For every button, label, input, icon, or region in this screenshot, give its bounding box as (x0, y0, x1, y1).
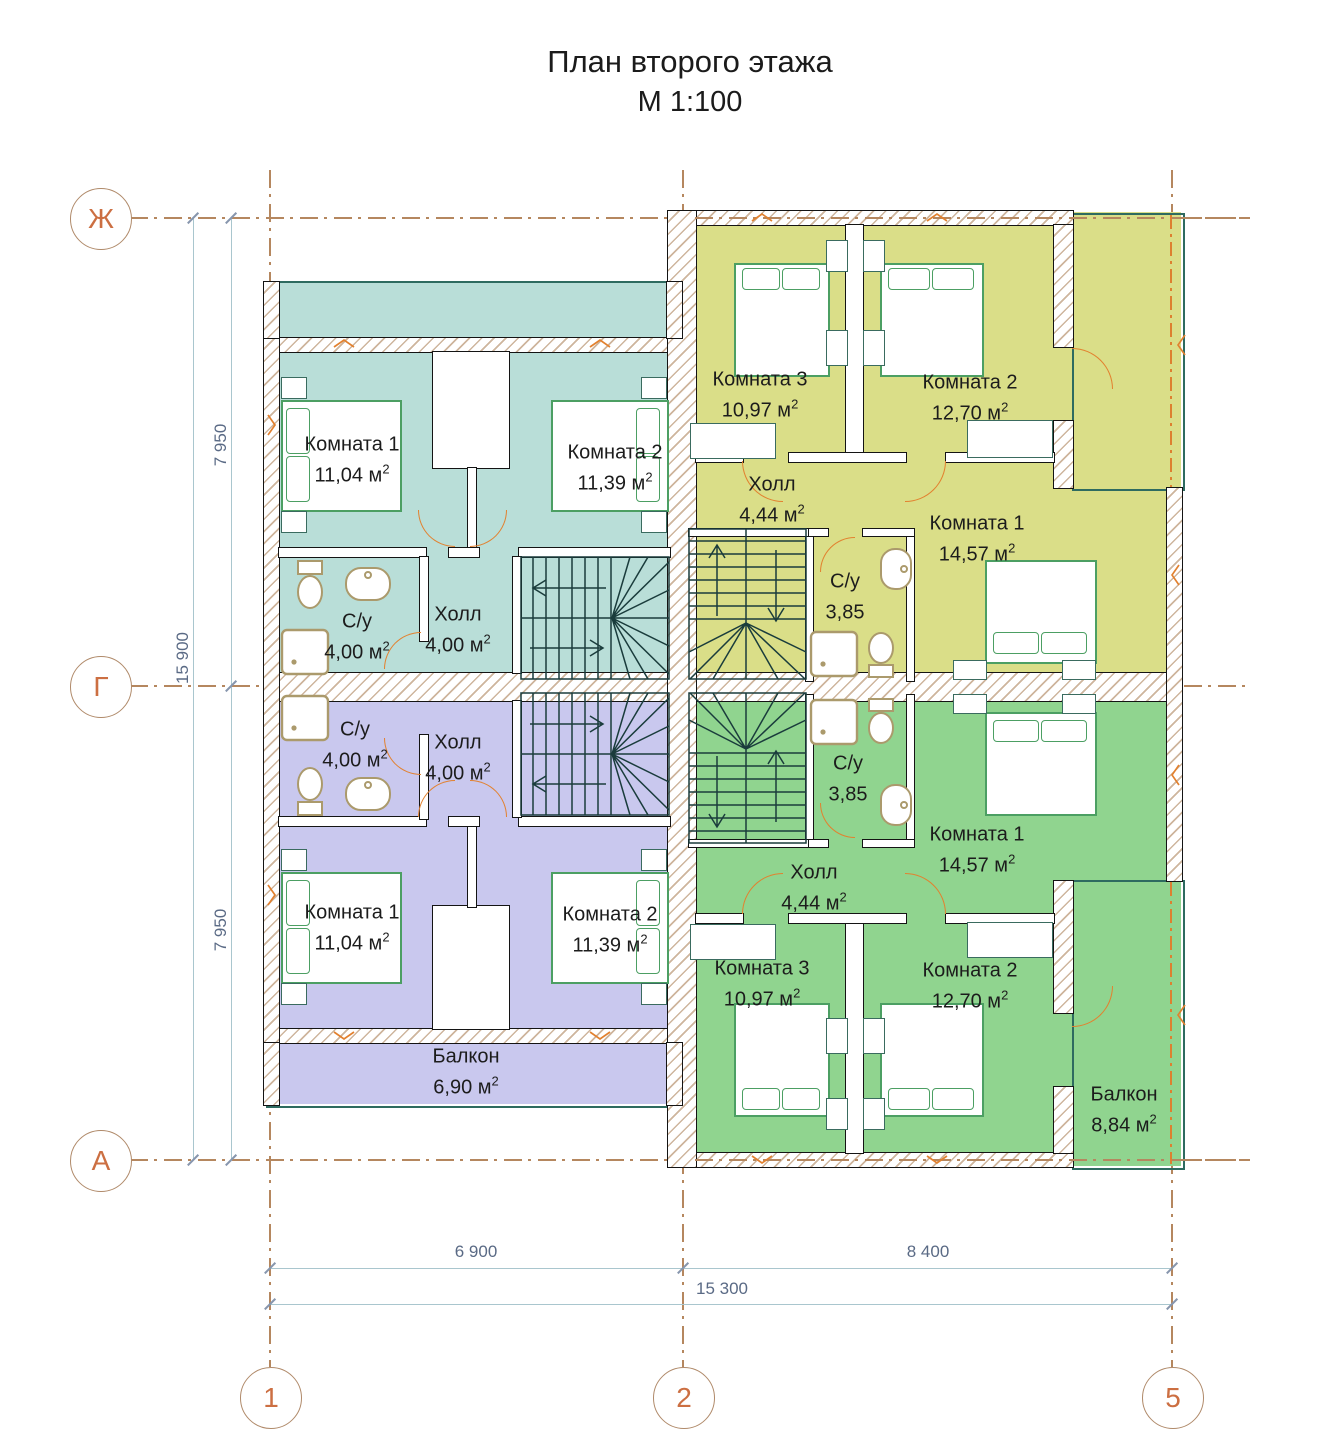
pillow (742, 1088, 780, 1110)
room-label-br-k3: Комната 3 10,97 м2 (715, 954, 810, 1015)
room-area-sup: 2 (382, 462, 389, 477)
axis-circle-1: 1 (240, 1367, 302, 1429)
window-mark-icon (750, 1154, 774, 1164)
axis-label-g: Г (93, 671, 108, 703)
closet (826, 1018, 848, 1054)
room-label-br-hall: Холл 4,44 м2 (781, 858, 846, 919)
room-area: 4,44 м2 (739, 500, 804, 531)
wall-segment (862, 839, 915, 848)
closet (826, 1098, 848, 1130)
room-label-br-k2: Комната 2 12,70 м2 (923, 956, 1018, 1017)
dimension-label-bottom-total: 15 300 (696, 1279, 748, 1299)
wall-segment (263, 281, 280, 339)
nightstand (281, 377, 307, 399)
pillow (1041, 720, 1087, 742)
toilet-icon (866, 698, 896, 746)
nightstand (1062, 660, 1096, 680)
wall-segment (467, 822, 477, 908)
closet (863, 240, 885, 272)
wall-segment (666, 281, 683, 339)
wall-segment (788, 452, 907, 463)
window-mark-icon (267, 413, 277, 437)
room-area-value: 14,57 м (939, 543, 1008, 565)
room-name: Комната 2 (568, 438, 663, 468)
pillow (932, 1088, 974, 1110)
room-name: С/у (322, 715, 387, 745)
wall-segment (1166, 487, 1183, 882)
pillow (1041, 632, 1087, 654)
balcony-outline-top-left (266, 281, 682, 341)
room-area: 14,57 м2 (930, 850, 1025, 881)
room-area-value: 10,97 м (722, 399, 791, 421)
room-area-value: 3,85 (826, 601, 865, 623)
room-area-value: 6,90 м (433, 1076, 491, 1098)
room-area: 8,84 м2 (1090, 1110, 1157, 1141)
room-area-sup: 2 (1150, 1112, 1157, 1127)
room-area: 10,97 м2 (713, 395, 808, 426)
grid-line-zh-overlay (695, 217, 1250, 219)
room-area: 11,04 м2 (305, 460, 400, 491)
closet (826, 330, 848, 366)
room-name: Комната 1 (930, 509, 1025, 539)
room-name: Комната 2 (923, 956, 1018, 986)
room-label-tl-k2: Комната 2 11,39 м2 (568, 438, 663, 499)
room-name: Холл (739, 470, 804, 500)
axis-circle-2: 2 (653, 1367, 715, 1429)
nightstand (281, 511, 307, 533)
pillow (993, 720, 1039, 742)
pillow (993, 632, 1039, 654)
room-area: 4,00 м2 (324, 637, 389, 668)
window-mark-icon (925, 212, 949, 222)
room-area-sup: 2 (381, 747, 388, 762)
window-mark-icon (588, 338, 612, 348)
room-name: Комната 2 (563, 900, 658, 930)
dimension-label-left-top: 7 950 (211, 424, 231, 467)
room-area-value: 4,00 м (322, 749, 380, 771)
dimension-label-left-bottom: 7 950 (211, 909, 231, 952)
axis-label-zh: Ж (88, 203, 114, 235)
grid-line-5-balcony-top (1170, 215, 1172, 487)
wall-segment (862, 528, 915, 537)
room-area-sup: 2 (798, 502, 805, 517)
room-area-sup: 2 (382, 930, 389, 945)
dimension-line-left-total (193, 218, 194, 1160)
toilet-icon (295, 764, 325, 816)
room-label-br-balcony: Балкон 8,84 м2 (1090, 1080, 1157, 1141)
wall-segment (432, 351, 510, 469)
room-area-value: 11,04 м (314, 932, 382, 954)
room-area-sup: 2 (1001, 400, 1008, 415)
window-mark-icon (1171, 763, 1181, 787)
pillow (742, 268, 780, 290)
room-area: 11,39 м2 (568, 468, 663, 499)
pillow (932, 268, 974, 290)
closet (863, 1018, 885, 1054)
room-area: 12,70 м2 (923, 398, 1018, 429)
room-label-tl-hall: Холл 4,00 м2 (425, 600, 490, 661)
closet (863, 1098, 885, 1130)
room-name: С/у (826, 567, 865, 597)
room-area: 4,00 м2 (425, 758, 490, 789)
room-label-bl-k1: Комната 1 11,04 м2 (305, 898, 400, 959)
wardrobe (690, 423, 776, 459)
room-area: 12,70 м2 (923, 986, 1018, 1017)
nightstand (641, 849, 667, 871)
shower-icon (809, 630, 859, 678)
nightstand (1062, 694, 1096, 714)
wall-segment (518, 816, 671, 827)
room-label-bl-hall: Холл 4,00 м2 (425, 728, 490, 789)
sink-icon (879, 783, 913, 827)
room-name: Комната 1 (930, 820, 1025, 850)
wall-segment (1053, 420, 1074, 489)
wall-segment (1053, 224, 1074, 348)
dimension-label-bottom-left: 6 900 (455, 1242, 498, 1262)
room-label-bl-balcony: Балкон 6,90 м2 (432, 1042, 499, 1103)
grid-line-5-balcony-bottom (1170, 882, 1172, 1164)
sink-icon (879, 547, 913, 591)
wall-segment (448, 816, 480, 827)
window-mark-icon (1171, 563, 1181, 587)
room-area: 3,85 (826, 597, 865, 628)
nightstand (953, 660, 987, 680)
room-area-sup: 2 (793, 986, 800, 1001)
wall-segment (448, 547, 480, 558)
room-name: Балкон (432, 1042, 499, 1072)
closet (863, 330, 885, 366)
room-name: Холл (425, 600, 490, 630)
axis-label-a: А (92, 1145, 111, 1177)
scale-label: М 1:100 (638, 86, 743, 119)
room-label-bl-su: С/у 4,00 м2 (322, 715, 387, 776)
room-name: Комната 1 (305, 898, 400, 928)
axis-label-1: 1 (263, 1382, 279, 1414)
room-area-value: 11,39 м (572, 934, 640, 956)
sink-icon (344, 566, 392, 602)
nightstand (281, 849, 307, 871)
room-area-sup: 2 (640, 932, 647, 947)
wall-segment (278, 816, 427, 827)
nightstand (641, 511, 667, 533)
shower-icon (809, 698, 859, 746)
room-label-br-k1: Комната 1 14,57 м2 (930, 820, 1025, 881)
grid-line-a-overlay (695, 1159, 1250, 1161)
room-area-sup: 2 (484, 760, 491, 775)
room-label-bl-k2: Комната 2 11,39 м2 (563, 900, 658, 961)
room-area-value: 10,97 м (724, 988, 793, 1010)
room-label-tr-su: С/у 3,85 (826, 567, 865, 628)
wardrobe (967, 922, 1053, 958)
room-area-value: 11,04 м (314, 464, 382, 486)
room-label-br-su: С/у 3,85 (829, 749, 868, 810)
wall-segment (695, 913, 744, 924)
room-name: С/у (324, 607, 389, 637)
window-mark-icon (1177, 1003, 1187, 1027)
room-area-sup: 2 (492, 1074, 499, 1089)
window-mark-icon (925, 1154, 949, 1164)
room-area-value: 11,39 м (577, 472, 645, 494)
room-name: С/у (829, 749, 868, 779)
room-label-tr-k3: Комната 3 10,97 м2 (713, 365, 808, 426)
room-area-sup: 2 (1008, 541, 1015, 556)
room-name: Комната 3 (715, 954, 810, 984)
pillow (888, 1088, 930, 1110)
room-label-tr-k2: Комната 2 12,70 м2 (923, 368, 1018, 429)
wall-segment (1053, 880, 1074, 1014)
wall-segment (432, 905, 510, 1030)
room-area-value: 12,70 м (932, 402, 1001, 424)
room-area: 11,04 м2 (305, 928, 400, 959)
room-area-value: 4,00 м (425, 634, 483, 656)
room-label-tl-su: С/у 4,00 м2 (324, 607, 389, 668)
wall-segment (263, 1042, 280, 1106)
toilet-icon (866, 630, 896, 678)
page-title: План второго этажа (547, 44, 832, 80)
shower-icon (280, 628, 330, 676)
room-label-tr-k1: Комната 1 14,57 м2 (930, 509, 1025, 570)
room-name: Комната 1 (305, 430, 400, 460)
window-mark-icon (267, 883, 277, 907)
room-area-value: 4,44 м (739, 504, 797, 526)
pillow (782, 268, 820, 290)
stairs (520, 692, 670, 816)
nightstand (641, 377, 667, 399)
room-area-value: 3,85 (829, 783, 868, 805)
dimension-line-bottom-total (270, 1304, 1172, 1305)
room-area: 4,00 м2 (425, 630, 490, 661)
dimension-line-bottom-halves (270, 1268, 1172, 1269)
room-label-tl-k1: Комната 1 11,04 м2 (305, 430, 400, 491)
toilet-icon (295, 560, 325, 612)
nightstand (641, 983, 667, 1005)
wall-segment (667, 210, 697, 1168)
floor-plan: План второго этажа М 1:100 Ж Г А 1 2 5 1… (0, 0, 1325, 1449)
room-area-sup: 2 (1001, 988, 1008, 1003)
stairs (688, 528, 807, 680)
room-label-tr-hall: Холл 4,44 м2 (739, 470, 804, 531)
room-area-value: 14,57 м (939, 854, 1008, 876)
wall-segment (666, 1042, 683, 1106)
pillow (782, 1088, 820, 1110)
room-area-value: 8,84 м (1091, 1114, 1149, 1136)
room-area-value: 4,44 м (781, 892, 839, 914)
window-mark-icon (750, 212, 774, 222)
room-name: Холл (425, 728, 490, 758)
room-area-value: 4,00 м (425, 762, 483, 784)
room-area-sup: 2 (645, 470, 652, 485)
room-area: 4,44 м2 (781, 888, 846, 919)
room-area-sup: 2 (383, 639, 390, 654)
axis-label-2: 2 (676, 1382, 692, 1414)
axis-circle-g: Г (70, 656, 132, 718)
window-mark-icon (332, 338, 356, 348)
room-name: Балкон (1090, 1080, 1157, 1110)
room-area: 3,85 (829, 779, 868, 810)
pillow (888, 268, 930, 290)
axis-circle-zh: Ж (70, 188, 132, 250)
wall-segment (1053, 1086, 1074, 1154)
nightstand (953, 694, 987, 714)
wall-segment (263, 337, 280, 1044)
window-mark-icon (332, 1030, 356, 1040)
window-mark-icon (1177, 333, 1187, 357)
nightstand (281, 983, 307, 1005)
window-mark-icon (588, 1030, 612, 1040)
room-area: 6,90 м2 (432, 1072, 499, 1103)
room-area: 10,97 м2 (715, 984, 810, 1015)
wall-segment (278, 547, 427, 558)
room-area: 14,57 м2 (930, 539, 1025, 570)
dimension-label-bottom-right: 8 400 (907, 1242, 950, 1262)
room-area: 4,00 м2 (322, 745, 387, 776)
dimension-line-left-halves (231, 218, 232, 1160)
closet (826, 240, 848, 272)
room-area-value: 12,70 м (932, 990, 1001, 1012)
sink-icon (344, 776, 392, 812)
axis-label-5: 5 (1165, 1382, 1181, 1414)
room-area: 11,39 м2 (563, 930, 658, 961)
room-area-sup: 2 (840, 890, 847, 905)
room-area-sup: 2 (791, 397, 798, 412)
room-name: Холл (781, 858, 846, 888)
room-name: Комната 3 (713, 365, 808, 395)
room-area-sup: 2 (484, 632, 491, 647)
room-area-value: 4,00 м (324, 641, 382, 663)
stairs (520, 556, 670, 680)
dimension-label-left-total: 15 900 (173, 632, 193, 684)
axis-circle-a: А (70, 1130, 132, 1192)
axis-circle-5: 5 (1142, 1367, 1204, 1429)
room-name: Комната 2 (923, 368, 1018, 398)
room-area-sup: 2 (1008, 852, 1015, 867)
stairs (688, 692, 807, 844)
